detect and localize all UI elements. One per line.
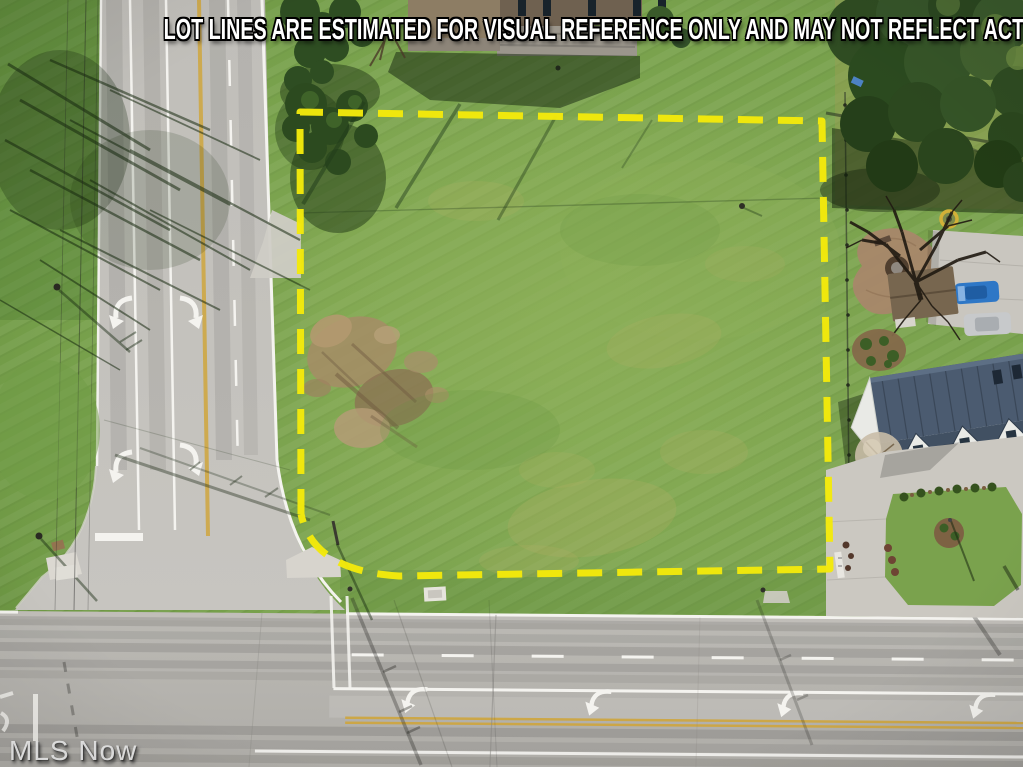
aerial-photo: LOT LINES ARE ESTIMATED FOR VISUAL REFER… xyxy=(0,0,1023,767)
aerial-scene xyxy=(0,0,1023,767)
disclaimer-banner: LOT LINES ARE ESTIMATED FOR VISUAL REFER… xyxy=(164,15,860,45)
mls-watermark: MLS Now xyxy=(9,735,137,767)
